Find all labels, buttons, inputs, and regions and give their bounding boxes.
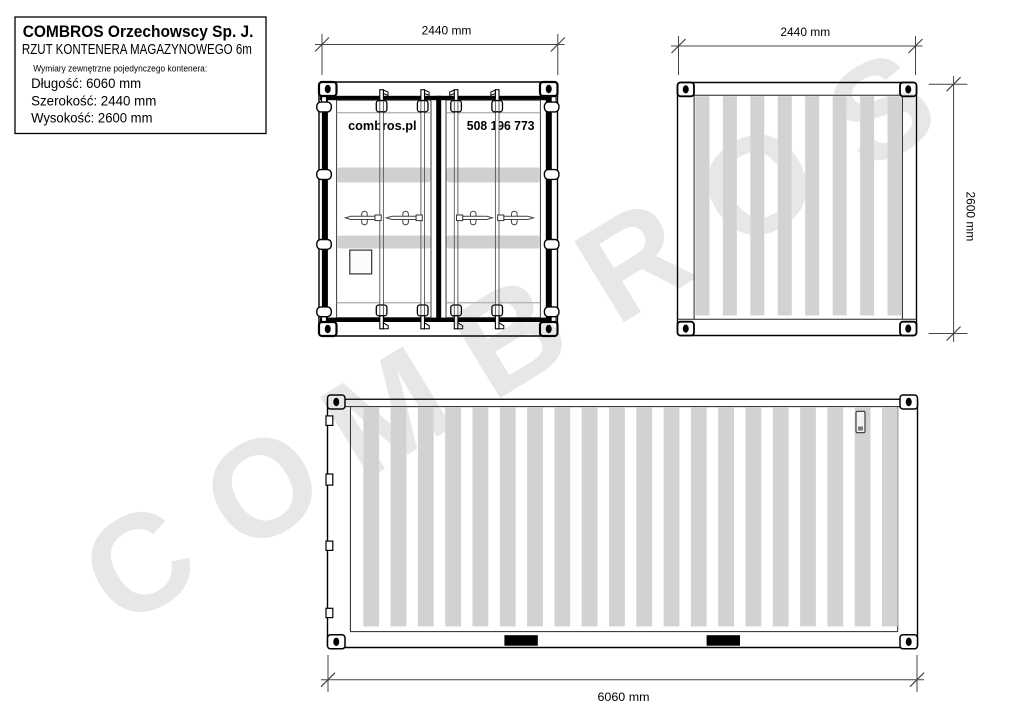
svg-text:Wysokość: 2600 mm: Wysokość: 2600 mm [31,111,152,126]
svg-text:Szerokość: 2440 mm: Szerokość: 2440 mm [31,93,156,108]
svg-text:COMBROS Orzechowscy Sp. J.: COMBROS Orzechowscy Sp. J. [23,22,254,41]
svg-text:2600 mm: 2600 mm [964,192,978,242]
svg-text:2440 mm: 2440 mm [422,24,472,38]
svg-text:RZUT KONTENERA MAGAZYNOWEGO 6m: RZUT KONTENERA MAGAZYNOWEGO 6m [22,41,252,58]
svg-text:6060 mm: 6060 mm [598,690,650,704]
svg-text:Długość: 6060 mm: Długość: 6060 mm [31,76,141,91]
svg-text:2440 mm: 2440 mm [780,25,830,39]
svg-text:508 196 773: 508 196 773 [467,118,535,133]
svg-text:Wymiary zewnętrzne pojedynczeg: Wymiary zewnętrzne pojedynczego kontener… [33,64,207,74]
